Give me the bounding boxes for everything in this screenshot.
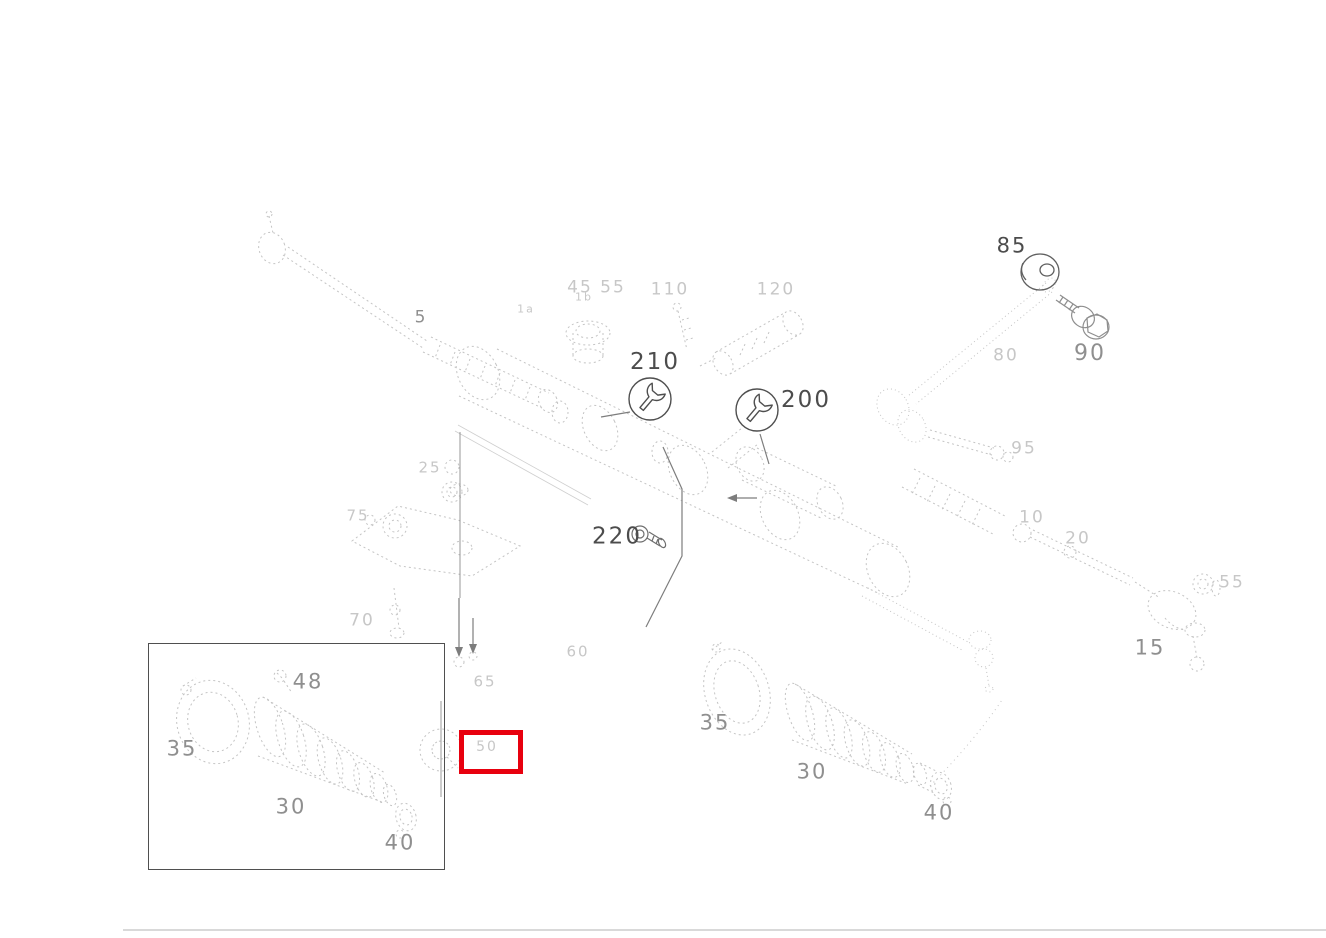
part-label-10: 10 [1019, 510, 1045, 527]
rod-95-sketch [928, 430, 1013, 462]
steering-shaft-sketch [871, 276, 1058, 448]
grommet-85-sketch [1021, 254, 1059, 290]
part-label-35[interactable]: 35 [700, 713, 731, 734]
part-label-50: 50 [476, 740, 498, 754]
part-label-210[interactable]: 210 [630, 349, 680, 375]
part-label-40[interactable]: 40 [385, 833, 416, 854]
part-label-40[interactable]: 40 [924, 803, 955, 824]
wrench-callout-210[interactable] [628, 377, 672, 421]
part-label-60: 60 [566, 645, 589, 660]
part-label-95: 95 [1011, 441, 1037, 458]
part-label-85[interactable]: 85 [997, 236, 1028, 257]
part-label-110: 110 [651, 282, 689, 299]
part-label-15[interactable]: 15 [1135, 638, 1166, 659]
part-label-5[interactable]: 5 [415, 310, 428, 327]
part-label-55: 55 [600, 280, 626, 297]
part-label-20: 20 [1065, 531, 1091, 548]
part-label-70: 70 [349, 613, 375, 630]
wrench-callout-200[interactable] [735, 388, 779, 432]
part-label-90[interactable]: 90 [1074, 343, 1106, 365]
bushing-stack-sketch [566, 303, 807, 379]
part-label-1b: 1b [575, 292, 593, 303]
bolt-90-sketch [1056, 295, 1109, 339]
part-label-35[interactable]: 35 [167, 739, 198, 760]
part-label-75: 75 [346, 509, 369, 524]
lower-rod-sketch [862, 588, 993, 692]
part-label-220[interactable]: 220 [592, 526, 642, 549]
mounting-bracket-sketch [352, 460, 520, 667]
part-label-55: 55 [1219, 575, 1245, 592]
part-label-48[interactable]: 48 [293, 672, 324, 693]
part-label-120: 120 [757, 282, 795, 299]
part-label-80: 80 [993, 348, 1019, 365]
part-label-1a: 1a [517, 304, 535, 315]
boot-assembly-sketch [693, 640, 1002, 805]
wrench-icon [735, 388, 779, 432]
part-label-65: 65 [473, 675, 496, 690]
part-label-25: 25 [418, 461, 441, 476]
parts-diagram-canvas: 8522090548353040353040154555110120809510… [0, 0, 1326, 938]
wrench-icon [628, 377, 672, 421]
inner-tie-rod-sketch [902, 469, 1133, 585]
tie-rod-left-sketch [254, 211, 561, 416]
part-label-30[interactable]: 30 [797, 762, 828, 783]
footer-separator-line [123, 929, 1326, 931]
part-label-30[interactable]: 30 [276, 797, 307, 818]
part-label-200[interactable]: 200 [781, 387, 831, 413]
